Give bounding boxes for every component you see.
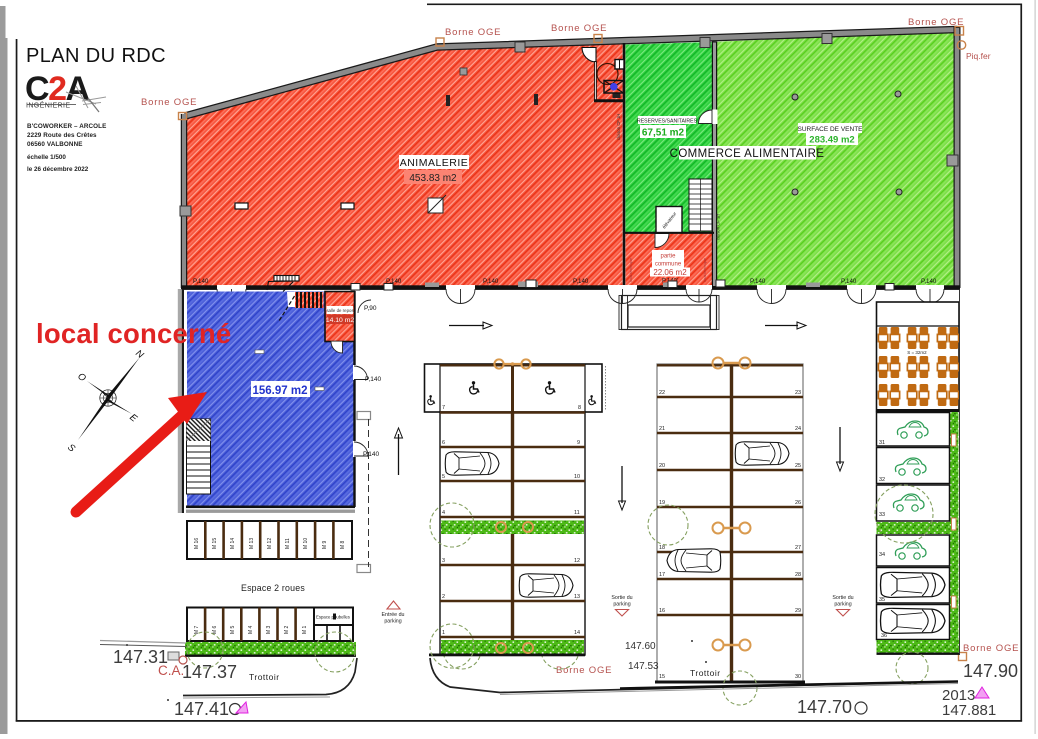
- svg-text:le 26 décembre 2022: le 26 décembre 2022: [27, 166, 89, 173]
- svg-text:M 5: M 5: [230, 625, 236, 634]
- svg-text:17: 17: [659, 572, 665, 578]
- svg-text:Borne OGE: Borne OGE: [445, 27, 501, 38]
- svg-text:P,90: P,90: [364, 305, 377, 312]
- svg-text:147.37: 147.37: [182, 662, 237, 682]
- svg-text:local concerné: local concerné: [36, 318, 231, 349]
- svg-text:6: 6: [442, 440, 445, 446]
- svg-text:31: 31: [879, 440, 885, 446]
- svg-text:M 16: M 16: [194, 538, 200, 549]
- svg-text:M 6: M 6: [212, 625, 218, 634]
- svg-text:M 14: M 14: [230, 538, 236, 549]
- svg-text:P,140: P,140: [750, 278, 766, 285]
- svg-text:147.60: 147.60: [625, 641, 656, 652]
- svg-text:19: 19: [659, 500, 665, 506]
- svg-text:14: 14: [574, 630, 580, 636]
- svg-text:11: 11: [574, 510, 580, 516]
- svg-text:1: 1: [442, 630, 445, 636]
- svg-text:M 10: M 10: [303, 538, 309, 549]
- svg-text:28: 28: [795, 572, 801, 578]
- svg-text:147.41: 147.41: [174, 699, 229, 719]
- svg-text:M 11: M 11: [285, 538, 291, 549]
- svg-text:parking: parking: [834, 602, 851, 608]
- svg-text:20: 20: [659, 463, 665, 469]
- svg-text:M 1: M 1: [302, 625, 308, 634]
- svg-text:156.97 m2: 156.97 m2: [253, 385, 308, 397]
- svg-text:283.49 m2: 283.49 m2: [809, 135, 854, 146]
- svg-text:Sortie du: Sortie du: [611, 595, 632, 601]
- svg-text:36: 36: [881, 633, 887, 639]
- svg-text:M 15: M 15: [212, 538, 218, 549]
- svg-text:commune: commune: [655, 262, 682, 268]
- svg-text:parking: parking: [384, 619, 401, 625]
- svg-text:16: 16: [659, 608, 665, 614]
- svg-text:M 3: M 3: [266, 625, 272, 634]
- svg-text:M 13: M 13: [249, 538, 255, 549]
- svg-text:4: 4: [442, 510, 445, 516]
- svg-text:SURFACE DE VENTE: SURFACE DE VENTE: [797, 126, 863, 133]
- svg-text:P,140: P,140: [573, 278, 589, 285]
- svg-text:32: 32: [879, 477, 885, 483]
- svg-text:P,140: P,140: [363, 451, 380, 458]
- svg-text:7: 7: [442, 405, 445, 411]
- svg-text:147.881: 147.881: [942, 702, 996, 719]
- svg-text:cloison CF 1H: cloison CF 1H: [716, 214, 721, 240]
- svg-text:COMMERCE ALIMENTAIRE: COMMERCE ALIMENTAIRE: [670, 148, 825, 160]
- svg-text:21: 21: [659, 426, 665, 432]
- svg-text:ANIMALERIE: ANIMALERIE: [400, 157, 469, 169]
- svg-text:3: 3: [442, 558, 445, 564]
- svg-text:partie: partie: [660, 254, 676, 260]
- svg-text:26: 26: [795, 500, 801, 506]
- svg-text:Trottoir: Trottoir: [249, 672, 280, 682]
- svg-text:35: 35: [879, 597, 885, 603]
- svg-text:10: 10: [574, 474, 580, 480]
- svg-text:P,140: P,140: [386, 278, 402, 285]
- svg-text:Borne OGE: Borne OGE: [963, 643, 1019, 654]
- svg-text:M 12: M 12: [267, 538, 273, 549]
- svg-text:Borne OGE: Borne OGE: [556, 665, 612, 676]
- svg-text:P,140: P,140: [365, 376, 382, 383]
- svg-text:local technique: local technique: [629, 258, 633, 282]
- svg-text:5: 5: [442, 474, 445, 480]
- svg-text:Borne OGE: Borne OGE: [141, 97, 197, 108]
- svg-text:P,140: P,140: [193, 278, 209, 285]
- svg-text:67,51 m2: 67,51 m2: [642, 128, 685, 139]
- svg-text:Borne OGE: Borne OGE: [551, 23, 607, 34]
- svg-text:33: 33: [879, 512, 885, 518]
- svg-text:échelle 1/500: échelle 1/500: [27, 154, 66, 161]
- svg-text:B'COWORKER – ARCOLE: B'COWORKER – ARCOLE: [27, 123, 106, 130]
- svg-text:29: 29: [795, 608, 801, 614]
- svg-text:25: 25: [795, 463, 801, 469]
- svg-text:2: 2: [442, 594, 445, 600]
- svg-text:Espace 2 roues: Espace 2 roues: [241, 583, 305, 593]
- svg-text:Piq.fer: Piq.fer: [966, 51, 991, 61]
- svg-text:9: 9: [577, 440, 580, 446]
- svg-text:local technique: local technique: [703, 258, 707, 282]
- svg-text:06560 VALBONNE: 06560 VALBONNE: [27, 141, 83, 148]
- svg-text:Sortie du: Sortie du: [832, 595, 853, 601]
- svg-text:14.10 m2: 14.10 m2: [326, 317, 355, 324]
- svg-text:M 2: M 2: [284, 625, 290, 634]
- svg-text:453.83 m2: 453.83 m2: [409, 173, 457, 184]
- svg-text:34: 34: [879, 552, 885, 558]
- svg-text:M 4: M 4: [248, 625, 254, 634]
- svg-text:salle de repos: salle de repos: [326, 308, 354, 313]
- svg-text:24: 24: [795, 426, 801, 432]
- svg-text:P,140: P,140: [921, 278, 937, 285]
- svg-text:8: 8: [578, 405, 581, 411]
- svg-text:P,140: P,140: [841, 278, 857, 285]
- svg-text:M 9: M 9: [322, 540, 328, 549]
- svg-text:2229 Route des Crêtes: 2229 Route des Crêtes: [27, 132, 97, 139]
- svg-text:parking: parking: [613, 602, 630, 608]
- svg-text:27: 27: [795, 545, 801, 551]
- svg-text:147.70: 147.70: [797, 697, 852, 717]
- svg-text:30: 30: [795, 674, 801, 680]
- svg-text:Entrée du: Entrée du: [382, 612, 405, 618]
- svg-text:Trottoir: Trottoir: [690, 668, 721, 678]
- svg-text:M 8: M 8: [340, 540, 346, 549]
- svg-text:C.A.: C.A.: [158, 663, 184, 678]
- svg-text:147.53: 147.53: [628, 661, 659, 672]
- svg-text:S = 32m2: S = 32m2: [907, 350, 927, 355]
- svg-text:13: 13: [574, 594, 580, 600]
- svg-text:22.06 m2: 22.06 m2: [653, 268, 687, 277]
- svg-text:22: 22: [659, 390, 665, 396]
- svg-text:147.90: 147.90: [963, 661, 1018, 681]
- svg-text:PLAN DU RDC: PLAN DU RDC: [26, 45, 166, 67]
- svg-text:cloison CF 1H: cloison CF 1H: [616, 114, 621, 140]
- svg-text:P,140: P,140: [483, 278, 499, 285]
- svg-text:18: 18: [659, 545, 665, 551]
- svg-text:15: 15: [659, 674, 665, 680]
- svg-text:23: 23: [795, 390, 801, 396]
- svg-text:12: 12: [574, 558, 580, 564]
- svg-text:RESERVES/SANITAIRES: RESERVES/SANITAIRES: [637, 119, 698, 125]
